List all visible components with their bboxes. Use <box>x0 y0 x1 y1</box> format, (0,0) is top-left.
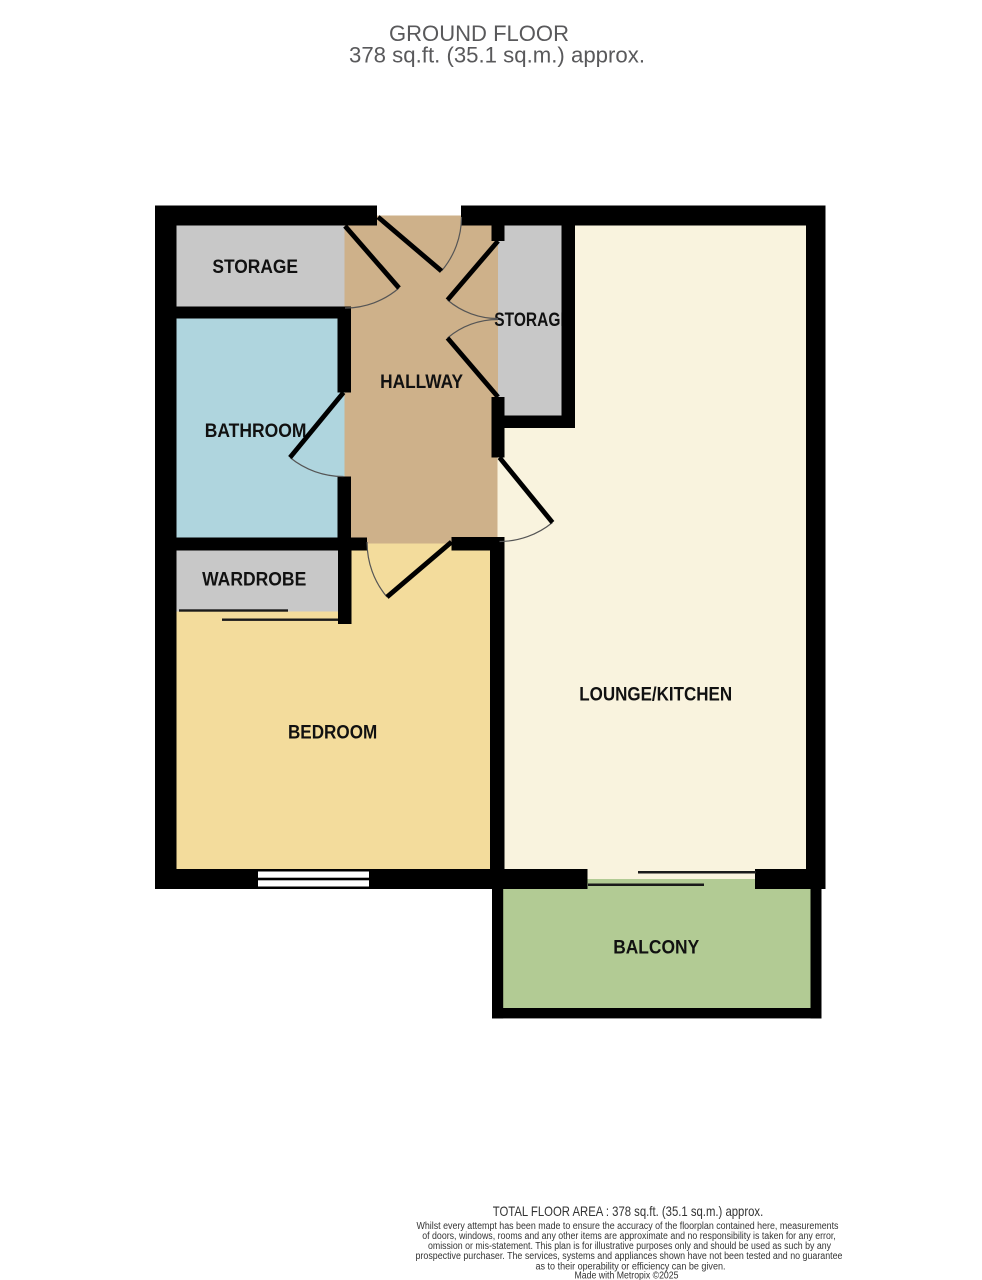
svg-text:STORAGE: STORAGE <box>494 309 571 331</box>
svg-text:Made with Metropix ©2025: Made with Metropix ©2025 <box>575 1271 679 1280</box>
svg-text:378 sq.ft. (35.1 sq.m.) approx: 378 sq.ft. (35.1 sq.m.) approx. <box>349 43 645 68</box>
svg-text:HALLWAY: HALLWAY <box>380 371 463 393</box>
svg-text:TOTAL FLOOR AREA : 378 sq.ft.: TOTAL FLOOR AREA : 378 sq.ft. (35.1 sq.m… <box>493 1203 764 1219</box>
svg-text:BEDROOM: BEDROOM <box>288 721 377 743</box>
svg-text:STORAGE: STORAGE <box>212 256 298 278</box>
svg-text:BATHROOM: BATHROOM <box>205 420 307 442</box>
svg-text:BALCONY: BALCONY <box>613 936 699 958</box>
svg-text:LOUNGE/KITCHEN: LOUNGE/KITCHEN <box>579 684 732 706</box>
svg-text:WARDROBE: WARDROBE <box>202 569 306 591</box>
